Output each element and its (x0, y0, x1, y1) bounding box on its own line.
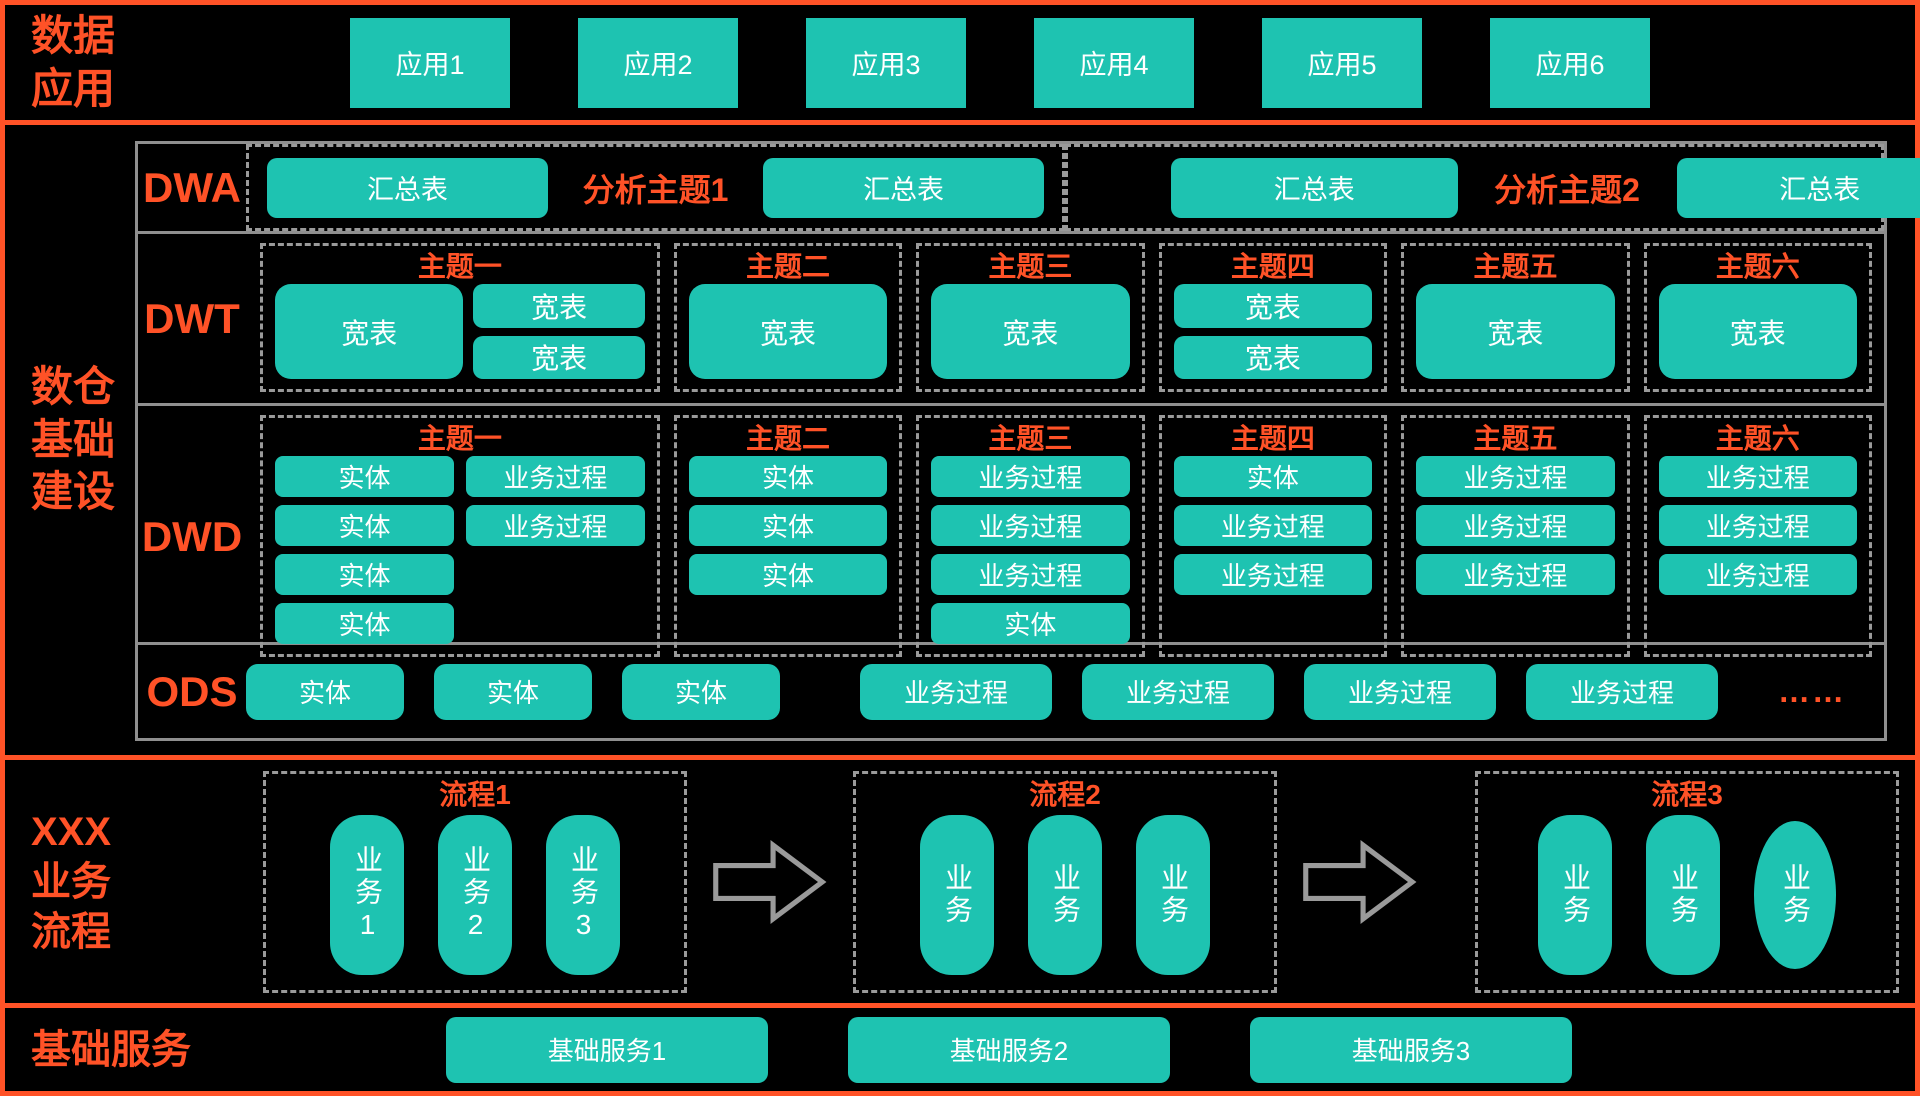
base-services-section: 基础服务 基础服务1 基础服务2 基础服务3 (5, 1008, 1915, 1091)
dwt-theme-5: 主题五 宽表 (1401, 243, 1629, 392)
business-pill: 业务 (1754, 821, 1836, 969)
business-process-box: 业务过程 (1416, 505, 1614, 546)
wide-table-box: 宽表 (1174, 284, 1372, 328)
business-process-box: 业务过程 (1659, 554, 1857, 595)
app-box: 应用1 (350, 18, 510, 108)
entity-box: 实体 (689, 456, 887, 497)
dwd-theme-4: 主题四 实体 业务过程 业务过程 (1159, 415, 1387, 657)
wide-table-box: 宽表 (275, 284, 463, 379)
theme-title: 主题五 (1416, 250, 1614, 284)
summary-table-box: 汇总表 (1677, 158, 1920, 218)
summary-table-box: 汇总表 (267, 158, 548, 218)
entity-box: 实体 (275, 456, 454, 497)
flow-box-1: 流程1 业务1 业务2 业务3 (263, 771, 687, 993)
wide-table-box: 宽表 (473, 284, 644, 328)
right-arrow-icon (711, 839, 829, 925)
service-box: 基础服务1 (446, 1017, 768, 1083)
theme-title: 主题四 (1174, 422, 1372, 456)
entity-box: 实体 (689, 554, 887, 595)
flow-box-3: 流程3 业务 业务 业务 (1475, 771, 1899, 993)
business-process-box: 业务过程 (1174, 554, 1372, 595)
business-process-box: 业务过程 (1304, 664, 1496, 720)
flow-box-2: 流程2 业务 业务 业务 (853, 771, 1277, 993)
entity-box: 实体 (622, 664, 780, 720)
dwd-layer-label: DWD (138, 406, 246, 668)
wide-table-box: 宽表 (931, 284, 1129, 379)
analysis-topic-group-2: 汇总表 分析主题2 汇总表 (1065, 144, 1884, 231)
dwa-layer: DWA 汇总表 分析主题1 汇总表 汇总表 分析主题2 汇总表 (138, 144, 1884, 234)
theme-title: 主题二 (689, 422, 887, 456)
entity-box: 实体 (275, 554, 454, 595)
business-process-box: 业务过程 (1416, 456, 1614, 497)
ods-layer: ODS 实体 实体 实体 业务过程 业务过程 业务过程 业务过程 …… (138, 645, 1884, 738)
service-box: 基础服务3 (1250, 1017, 1572, 1083)
business-process-box: 业务过程 (466, 505, 645, 546)
business-pill: 业务1 (330, 815, 404, 975)
dwd-layer: DWD 主题一 实体 实体 实体 实体 业务过程 业务过程 (138, 406, 1884, 645)
app-box: 应用4 (1034, 18, 1194, 108)
entity-box: 实体 (275, 603, 454, 644)
business-process-box: 业务过程 (931, 554, 1129, 595)
data-apps-section: 数据 应用 应用1 应用2 应用3 应用4 应用5 应用6 (5, 5, 1915, 125)
business-process-box: 业务过程 (931, 456, 1129, 497)
business-process-box: 业务过程 (931, 505, 1129, 546)
wide-table-box: 宽表 (473, 336, 644, 380)
business-pill: 业务 (920, 815, 994, 975)
app-box: 应用6 (1490, 18, 1650, 108)
entity-box: 实体 (689, 505, 887, 546)
theme-title: 主题六 (1659, 422, 1857, 456)
app-box: 应用5 (1262, 18, 1422, 108)
business-process-box: 业务过程 (1526, 664, 1718, 720)
app-box: 应用2 (578, 18, 738, 108)
warehouse-container: DWA 汇总表 分析主题1 汇总表 汇总表 分析主题2 汇总表 DWT (135, 141, 1887, 741)
app-box: 应用3 (806, 18, 966, 108)
flow-title: 流程3 (1651, 778, 1723, 812)
dwd-theme-3: 主题三 业务过程 业务过程 业务过程 实体 (916, 415, 1144, 657)
entity-box: 实体 (275, 505, 454, 546)
dwa-layer-label: DWA (138, 144, 246, 231)
warehouse-section: 数仓 基础 建设 DWA 汇总表 分析主题1 汇总表 汇总表 分析主题2 汇总表 (5, 125, 1915, 760)
analysis-topic-title: 分析主题2 (1472, 165, 1663, 211)
dwd-theme-5: 主题五 业务过程 业务过程 业务过程 (1401, 415, 1629, 657)
service-box: 基础服务2 (848, 1017, 1170, 1083)
theme-title: 主题四 (1174, 250, 1372, 284)
dwt-layer: DWT 主题一 宽表 宽表 宽表 主题二 宽表 (138, 234, 1884, 406)
theme-title: 主题五 (1416, 422, 1614, 456)
business-pill: 业务3 (546, 815, 620, 975)
wide-table-box: 宽表 (1416, 284, 1614, 379)
entity-box: 实体 (1174, 456, 1372, 497)
business-pill: 业务 (1538, 815, 1612, 975)
ods-layer-label: ODS (138, 668, 246, 716)
business-process-box: 业务过程 (1659, 456, 1857, 497)
business-process-box: 业务过程 (1659, 505, 1857, 546)
dwt-theme-1: 主题一 宽表 宽表 宽表 (260, 243, 660, 392)
dwd-theme-6: 主题六 业务过程 业务过程 业务过程 (1644, 415, 1872, 657)
dwt-theme-2: 主题二 宽表 (674, 243, 902, 392)
flow-title: 流程2 (1029, 778, 1101, 812)
base-services-label: 基础服务 (5, 1025, 191, 1075)
entity-box: 实体 (931, 603, 1129, 644)
summary-table-box: 汇总表 (763, 158, 1044, 218)
dwa-groups: 汇总表 分析主题1 汇总表 汇总表 分析主题2 汇总表 (246, 144, 1884, 231)
theme-title: 主题一 (275, 250, 645, 284)
business-pill: 业务2 (438, 815, 512, 975)
business-pill: 业务 (1646, 815, 1720, 975)
dwd-theme-2: 主题二 实体 实体 实体 (674, 415, 902, 657)
dwt-layer-label: DWT (138, 234, 246, 403)
business-process-box: 业务过程 (466, 456, 645, 497)
flow-title: 流程1 (439, 778, 511, 812)
architecture-diagram: 数据 应用 应用1 应用2 应用3 应用4 应用5 应用6 数仓 基础 建设 D… (0, 0, 1920, 1096)
app-box-list: 应用1 应用2 应用3 应用4 应用5 应用6 (135, 5, 1915, 120)
dwt-theme-4: 主题四 宽表 宽表 (1159, 243, 1387, 392)
theme-title: 主题二 (689, 250, 887, 284)
dwt-theme-6: 主题六 宽表 (1644, 243, 1872, 392)
summary-table-box: 汇总表 (1171, 158, 1458, 218)
business-pill: 业务 (1136, 815, 1210, 975)
theme-title: 主题六 (1659, 250, 1857, 284)
business-flow-section: XXX 业务 流程 流程1 业务1 业务2 业务3 流程2 业务 业务 业务 (5, 760, 1915, 1008)
dwd-theme-1: 主题一 实体 实体 实体 实体 业务过程 业务过程 (260, 415, 660, 657)
entity-box: 实体 (434, 664, 592, 720)
business-process-box: 业务过程 (860, 664, 1052, 720)
business-process-box: 业务过程 (1174, 505, 1372, 546)
business-process-box: 业务过程 (1416, 554, 1614, 595)
theme-title: 主题三 (931, 250, 1129, 284)
theme-title: 主题三 (931, 422, 1129, 456)
dwt-theme-3: 主题三 宽表 (916, 243, 1144, 392)
warehouse-label: 数仓 基础 建设 (5, 125, 135, 755)
business-pill: 业务 (1028, 815, 1102, 975)
business-flow-label: XXX 业务 流程 (5, 807, 155, 957)
ellipsis-text: …… (1778, 673, 1846, 710)
theme-title: 主题一 (275, 422, 645, 456)
entity-box: 实体 (246, 664, 404, 720)
right-arrow-icon (1301, 839, 1419, 925)
wide-table-box: 宽表 (689, 284, 887, 379)
data-apps-label: 数据 应用 (5, 5, 135, 120)
wide-table-box: 宽表 (1659, 284, 1857, 379)
analysis-topic-title: 分析主题1 (562, 165, 749, 211)
business-process-box: 业务过程 (1082, 664, 1274, 720)
wide-table-box: 宽表 (1174, 336, 1372, 380)
analysis-topic-group-1: 汇总表 分析主题1 汇总表 (246, 144, 1065, 231)
